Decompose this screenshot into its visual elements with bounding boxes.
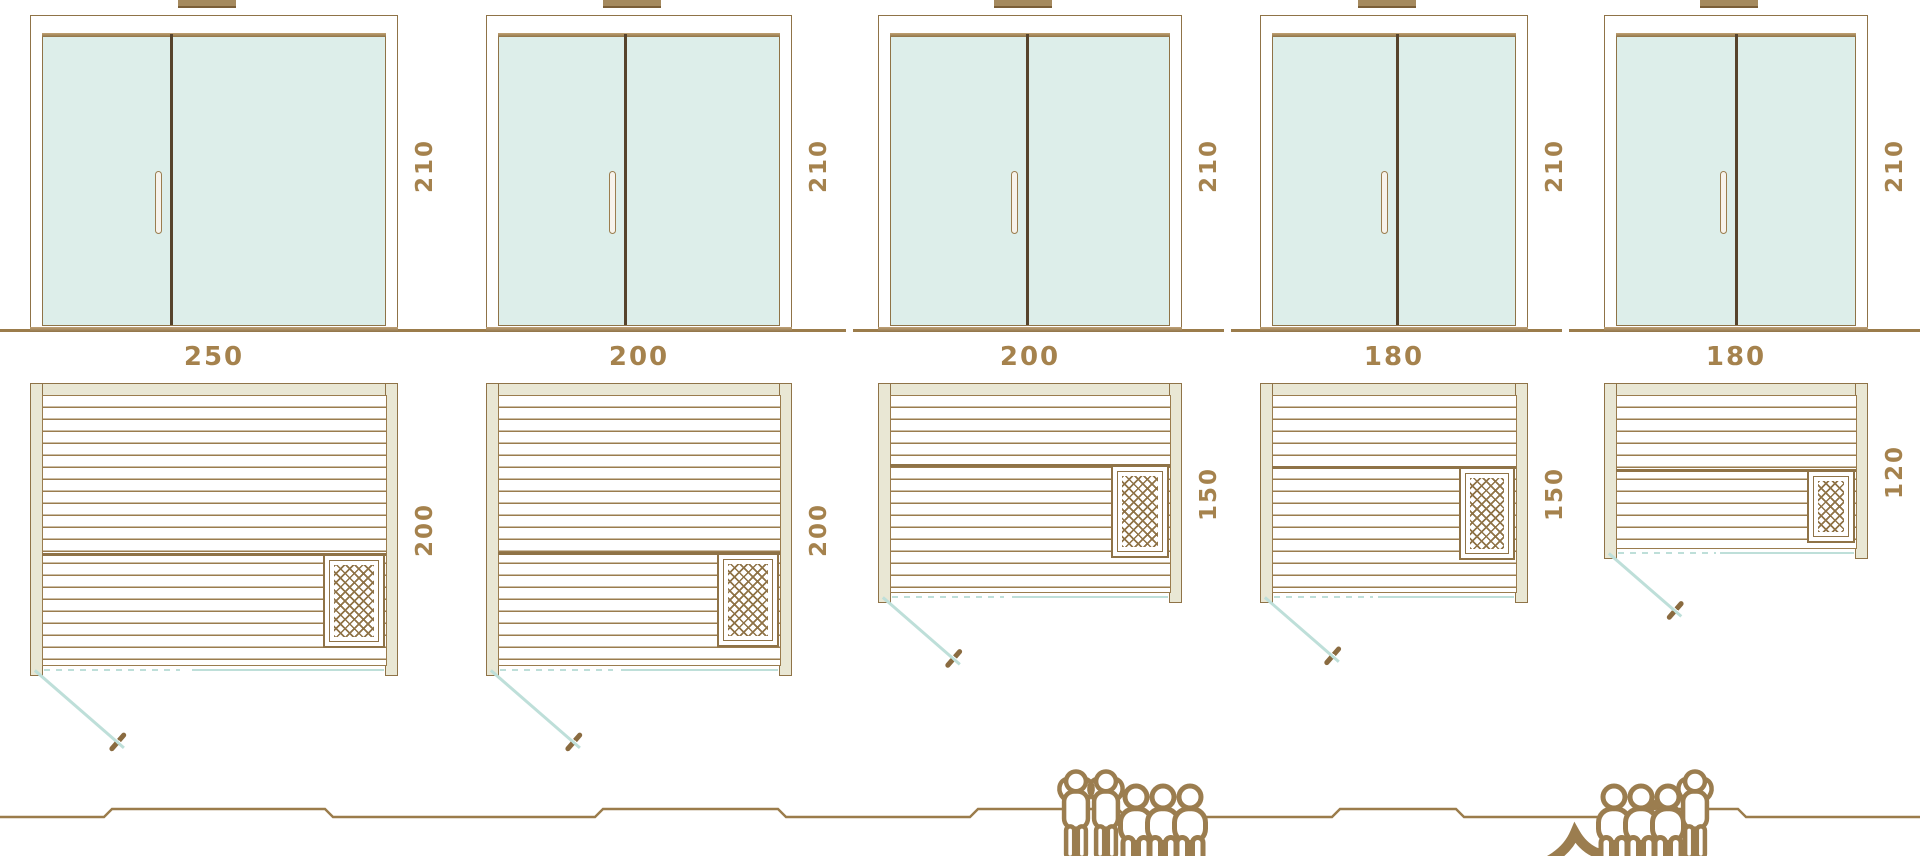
door-handle-icon xyxy=(609,171,616,234)
door-elevation xyxy=(1260,15,1528,331)
capacity-group-3 xyxy=(1834,786,1920,856)
glass-panel xyxy=(890,33,1170,326)
glass-panel xyxy=(1272,33,1516,326)
fixed-glass-line xyxy=(621,669,778,672)
heater-mesh xyxy=(1818,481,1844,532)
height-dimension-label: 210 xyxy=(1196,126,1222,206)
door-swing-line xyxy=(882,596,961,665)
sauna-size-diagram: 210 250 200 210 200 xyxy=(0,0,1920,856)
heater-mesh xyxy=(334,565,374,637)
door-opening-dashed-line xyxy=(1274,596,1373,599)
roof-vent-icon xyxy=(178,0,236,8)
height-dimension-label: 210 xyxy=(1542,126,1568,206)
door-swing-line xyxy=(34,669,125,748)
door-swing-handle-icon xyxy=(108,732,127,753)
depth-dimension-label: 200 xyxy=(806,490,832,570)
roof-vent-icon xyxy=(603,0,661,8)
door-divider xyxy=(1026,34,1029,325)
height-dimension-label: 210 xyxy=(806,126,832,206)
door-lintel xyxy=(890,33,1170,37)
fixed-glass-line xyxy=(1378,596,1514,599)
door-handle-icon xyxy=(1720,171,1727,234)
roof-vent-icon xyxy=(994,0,1052,8)
door-divider xyxy=(170,34,173,325)
height-dimension-label: 210 xyxy=(412,126,438,206)
heater-icon xyxy=(717,553,779,647)
sauna-column-5: 210 180 120 xyxy=(1604,0,1868,856)
door-sill xyxy=(486,327,792,332)
door-swing-handle-icon xyxy=(564,732,583,753)
door-elevation xyxy=(878,15,1182,331)
door-sill xyxy=(1260,327,1528,332)
heater-icon xyxy=(1111,465,1169,558)
door-opening-dashed-line xyxy=(892,596,1004,599)
fixed-glass-line xyxy=(192,669,384,672)
sauna-column-1: 210 250 200 xyxy=(30,0,398,856)
height-dimension-label: 210 xyxy=(1882,126,1908,206)
door-handle-icon xyxy=(1381,171,1388,234)
heater-icon xyxy=(1459,467,1515,560)
floor-plan xyxy=(878,383,1182,603)
heater-icon xyxy=(323,554,385,648)
person-standing-icon xyxy=(1059,771,1092,856)
person-standing-icon xyxy=(1678,771,1711,856)
door-elevation xyxy=(486,15,792,331)
plan-wall-right xyxy=(385,383,398,676)
door-sill xyxy=(878,327,1182,332)
depth-dimension-label: 150 xyxy=(1196,454,1222,534)
roof-vent-icon xyxy=(1358,0,1416,8)
door-swing-handle-icon xyxy=(1323,646,1342,667)
glass-panel xyxy=(42,33,386,326)
door-opening-dashed-line xyxy=(44,669,180,672)
door-divider xyxy=(624,34,627,325)
door-swing-handle-icon xyxy=(944,648,963,669)
sauna-column-3: 210 200 150 xyxy=(878,0,1182,856)
sauna-column-4: 210 180 150 xyxy=(1260,0,1528,856)
heater-mesh xyxy=(1470,478,1504,549)
floor-plan xyxy=(486,383,792,676)
sauna-column-2: 210 200 200 xyxy=(486,0,792,856)
door-sill xyxy=(1604,327,1868,332)
door-opening-dashed-line xyxy=(1618,552,1716,555)
person-standing-icon xyxy=(1089,771,1122,856)
door-lintel xyxy=(498,33,780,37)
fixed-glass-line xyxy=(1012,596,1168,599)
door-handle-icon xyxy=(155,171,162,234)
door-handle-icon xyxy=(1011,171,1018,234)
plan-wall-right xyxy=(1855,383,1868,559)
heater-mesh xyxy=(728,564,768,636)
width-dimension-label: 180 xyxy=(1260,342,1528,372)
fixed-glass-line xyxy=(1720,552,1854,555)
width-dimension-label: 200 xyxy=(486,342,792,372)
width-dimension-label: 180 xyxy=(1604,342,1868,372)
door-divider xyxy=(1735,34,1738,325)
door-sill xyxy=(30,327,398,332)
door-swing-line xyxy=(1264,596,1340,662)
depth-dimension-label: 120 xyxy=(1882,432,1908,512)
glass-panel xyxy=(498,33,780,326)
floor-plan xyxy=(1260,383,1528,603)
depth-dimension-label: 150 xyxy=(1542,454,1568,534)
door-lintel xyxy=(42,33,386,37)
capacity-figures-row xyxy=(0,766,1920,856)
plan-wall-right xyxy=(779,383,792,676)
plan-wall-right xyxy=(1169,383,1182,603)
door-divider xyxy=(1396,34,1399,325)
capacity-group-1 xyxy=(0,771,1206,856)
depth-dimension-label: 200 xyxy=(412,490,438,570)
door-swing-line xyxy=(490,669,581,748)
heater-mesh xyxy=(1122,476,1158,547)
person-lying-icon xyxy=(1834,805,1920,856)
floor-plan xyxy=(30,383,398,676)
floor-plan xyxy=(1604,383,1868,559)
width-dimension-label: 250 xyxy=(30,342,398,372)
roof-vent-icon xyxy=(1700,0,1758,8)
person-sitting-icon xyxy=(1175,786,1206,856)
door-opening-dashed-line xyxy=(500,669,613,672)
door-swing-line xyxy=(1608,552,1682,617)
door-elevation xyxy=(30,15,398,331)
heater-icon xyxy=(1807,470,1855,543)
capacity-group-2 xyxy=(1459,771,1711,856)
width-dimension-label: 200 xyxy=(878,342,1182,372)
door-swing-handle-icon xyxy=(1666,600,1685,621)
plan-wall-right xyxy=(1515,383,1528,603)
door-elevation xyxy=(1604,15,1868,331)
door-lintel xyxy=(1272,33,1516,37)
